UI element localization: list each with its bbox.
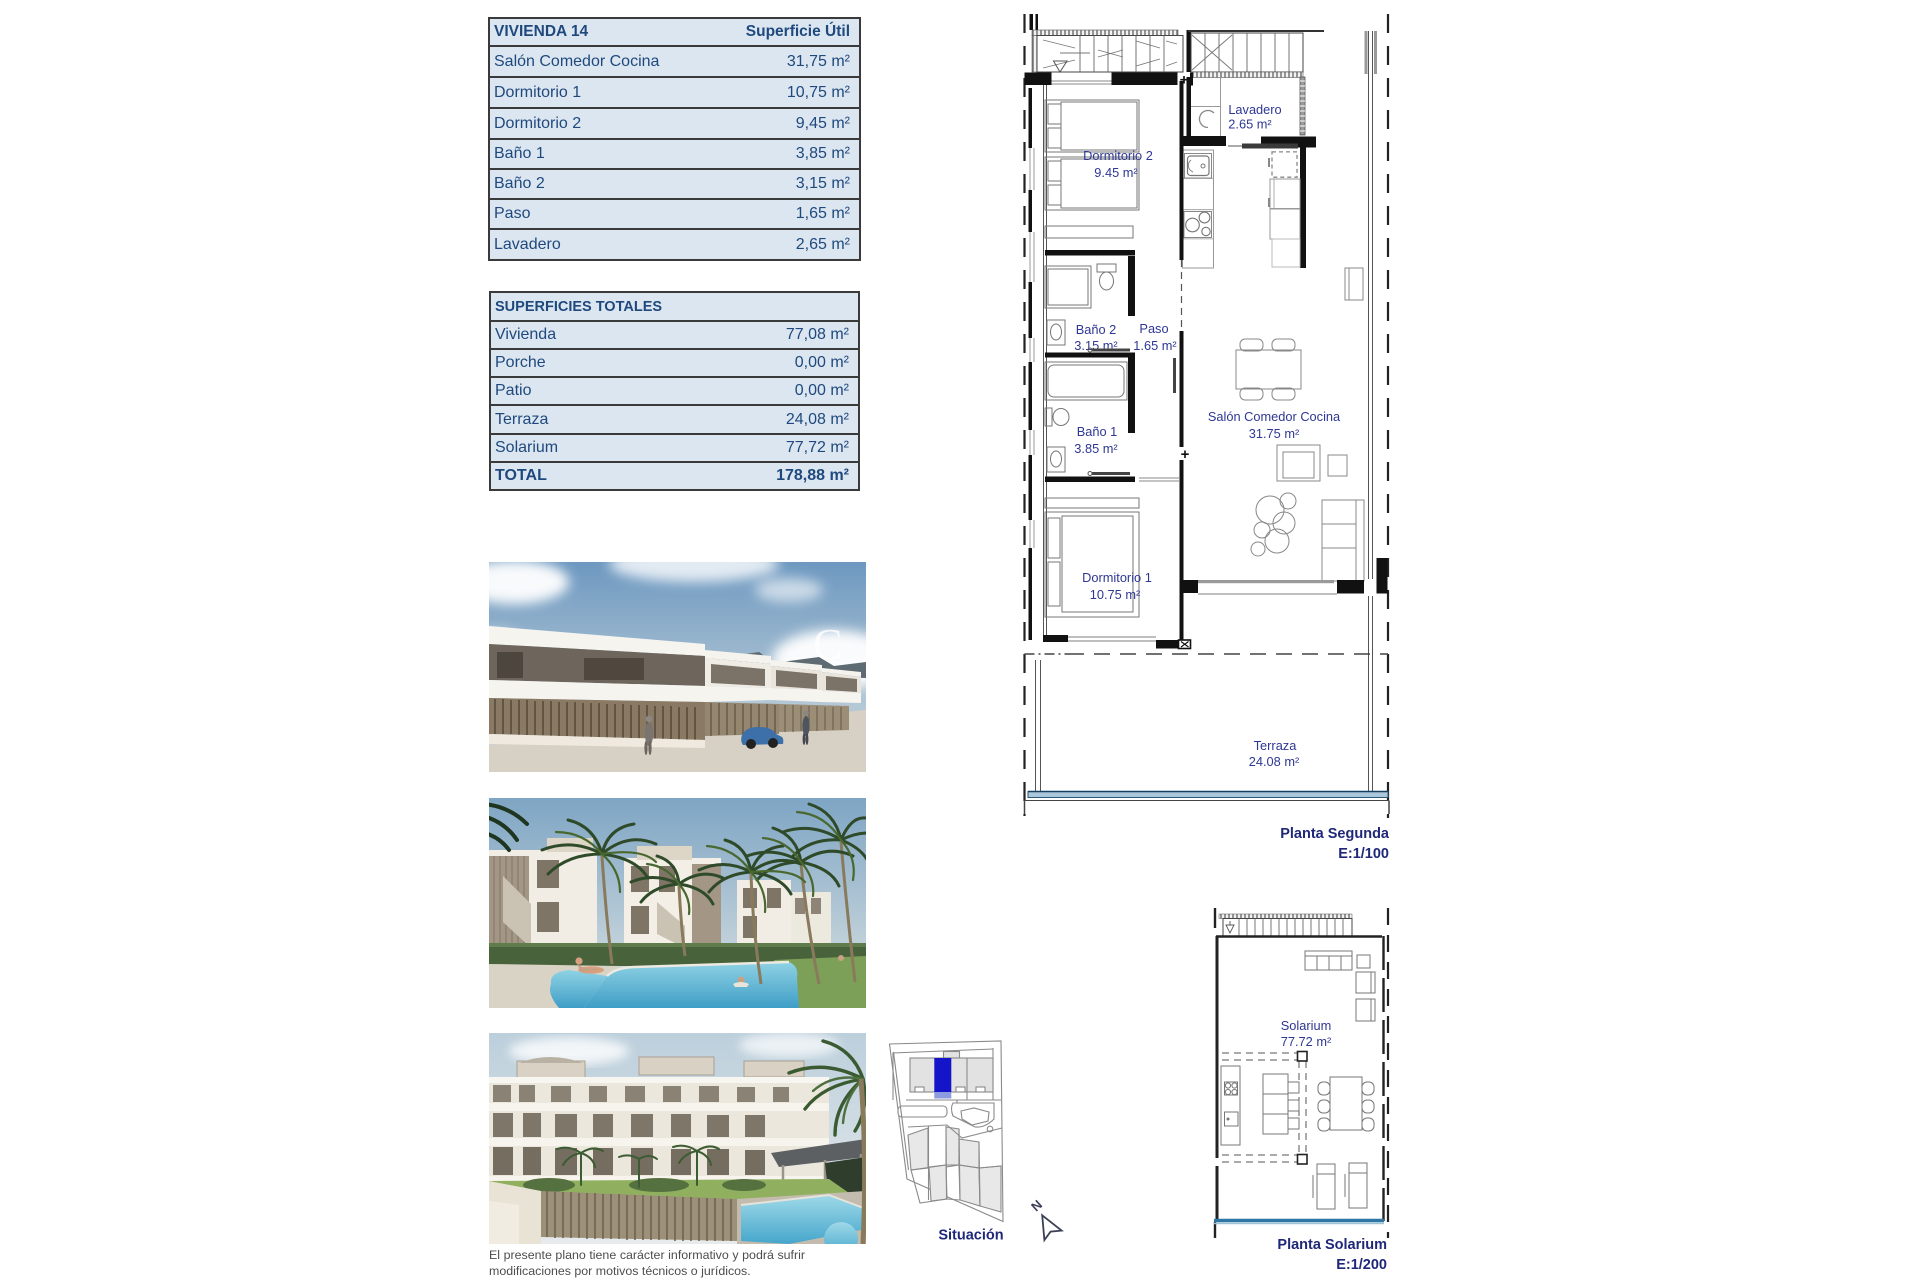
- svg-text:C: C: [813, 620, 842, 669]
- svg-text:Situación: Situación: [938, 1228, 1003, 1244]
- svg-text:Dormitorio 2: Dormitorio 2: [1083, 148, 1153, 163]
- svg-text:E:1/100: E:1/100: [1338, 846, 1389, 862]
- svg-text:Planta Segunda: Planta Segunda: [1280, 826, 1390, 842]
- svg-text:Dormitorio 1: Dormitorio 1: [1082, 570, 1152, 585]
- svg-text:10.75 m²: 10.75 m²: [1090, 587, 1141, 602]
- svg-text:Baño 1: Baño 1: [1077, 424, 1118, 439]
- svg-text:24.08 m²: 24.08 m²: [1249, 754, 1300, 769]
- svg-text:Baño 2: Baño 2: [1076, 322, 1117, 337]
- svg-text:Planta Solarium: Planta Solarium: [1277, 1237, 1387, 1253]
- svg-text:1.65 m²: 1.65 m²: [1133, 338, 1177, 353]
- svg-text:E:1/200: E:1/200: [1336, 1257, 1387, 1273]
- svg-text:Paso: Paso: [1139, 321, 1168, 336]
- svg-text:2.65 m²: 2.65 m²: [1228, 117, 1272, 132]
- svg-text:Solarium: Solarium: [1281, 1018, 1332, 1033]
- svg-text:Lavadero: Lavadero: [1228, 102, 1281, 117]
- svg-text:N: N: [1028, 1197, 1045, 1214]
- svg-text:Salón Comedor Cocina: Salón Comedor Cocina: [1208, 409, 1341, 424]
- svg-text:31.75 m²: 31.75 m²: [1249, 426, 1300, 441]
- svg-text:Terraza: Terraza: [1254, 738, 1298, 753]
- svg-text:9.45 m²: 9.45 m²: [1094, 165, 1138, 180]
- svg-text:3.85 m²: 3.85 m²: [1074, 441, 1118, 456]
- svg-text:77.72 m²: 77.72 m²: [1281, 1034, 1332, 1049]
